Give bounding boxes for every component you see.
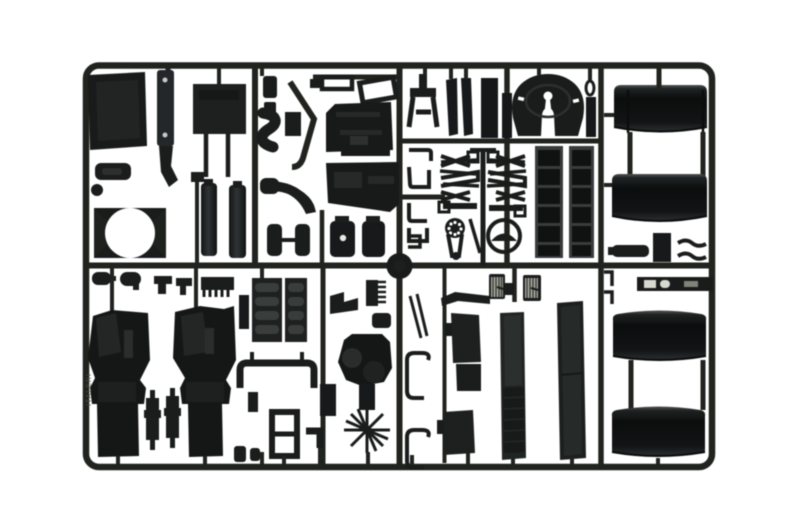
svg-text:ITALERI: ITALERI [86, 373, 93, 406]
